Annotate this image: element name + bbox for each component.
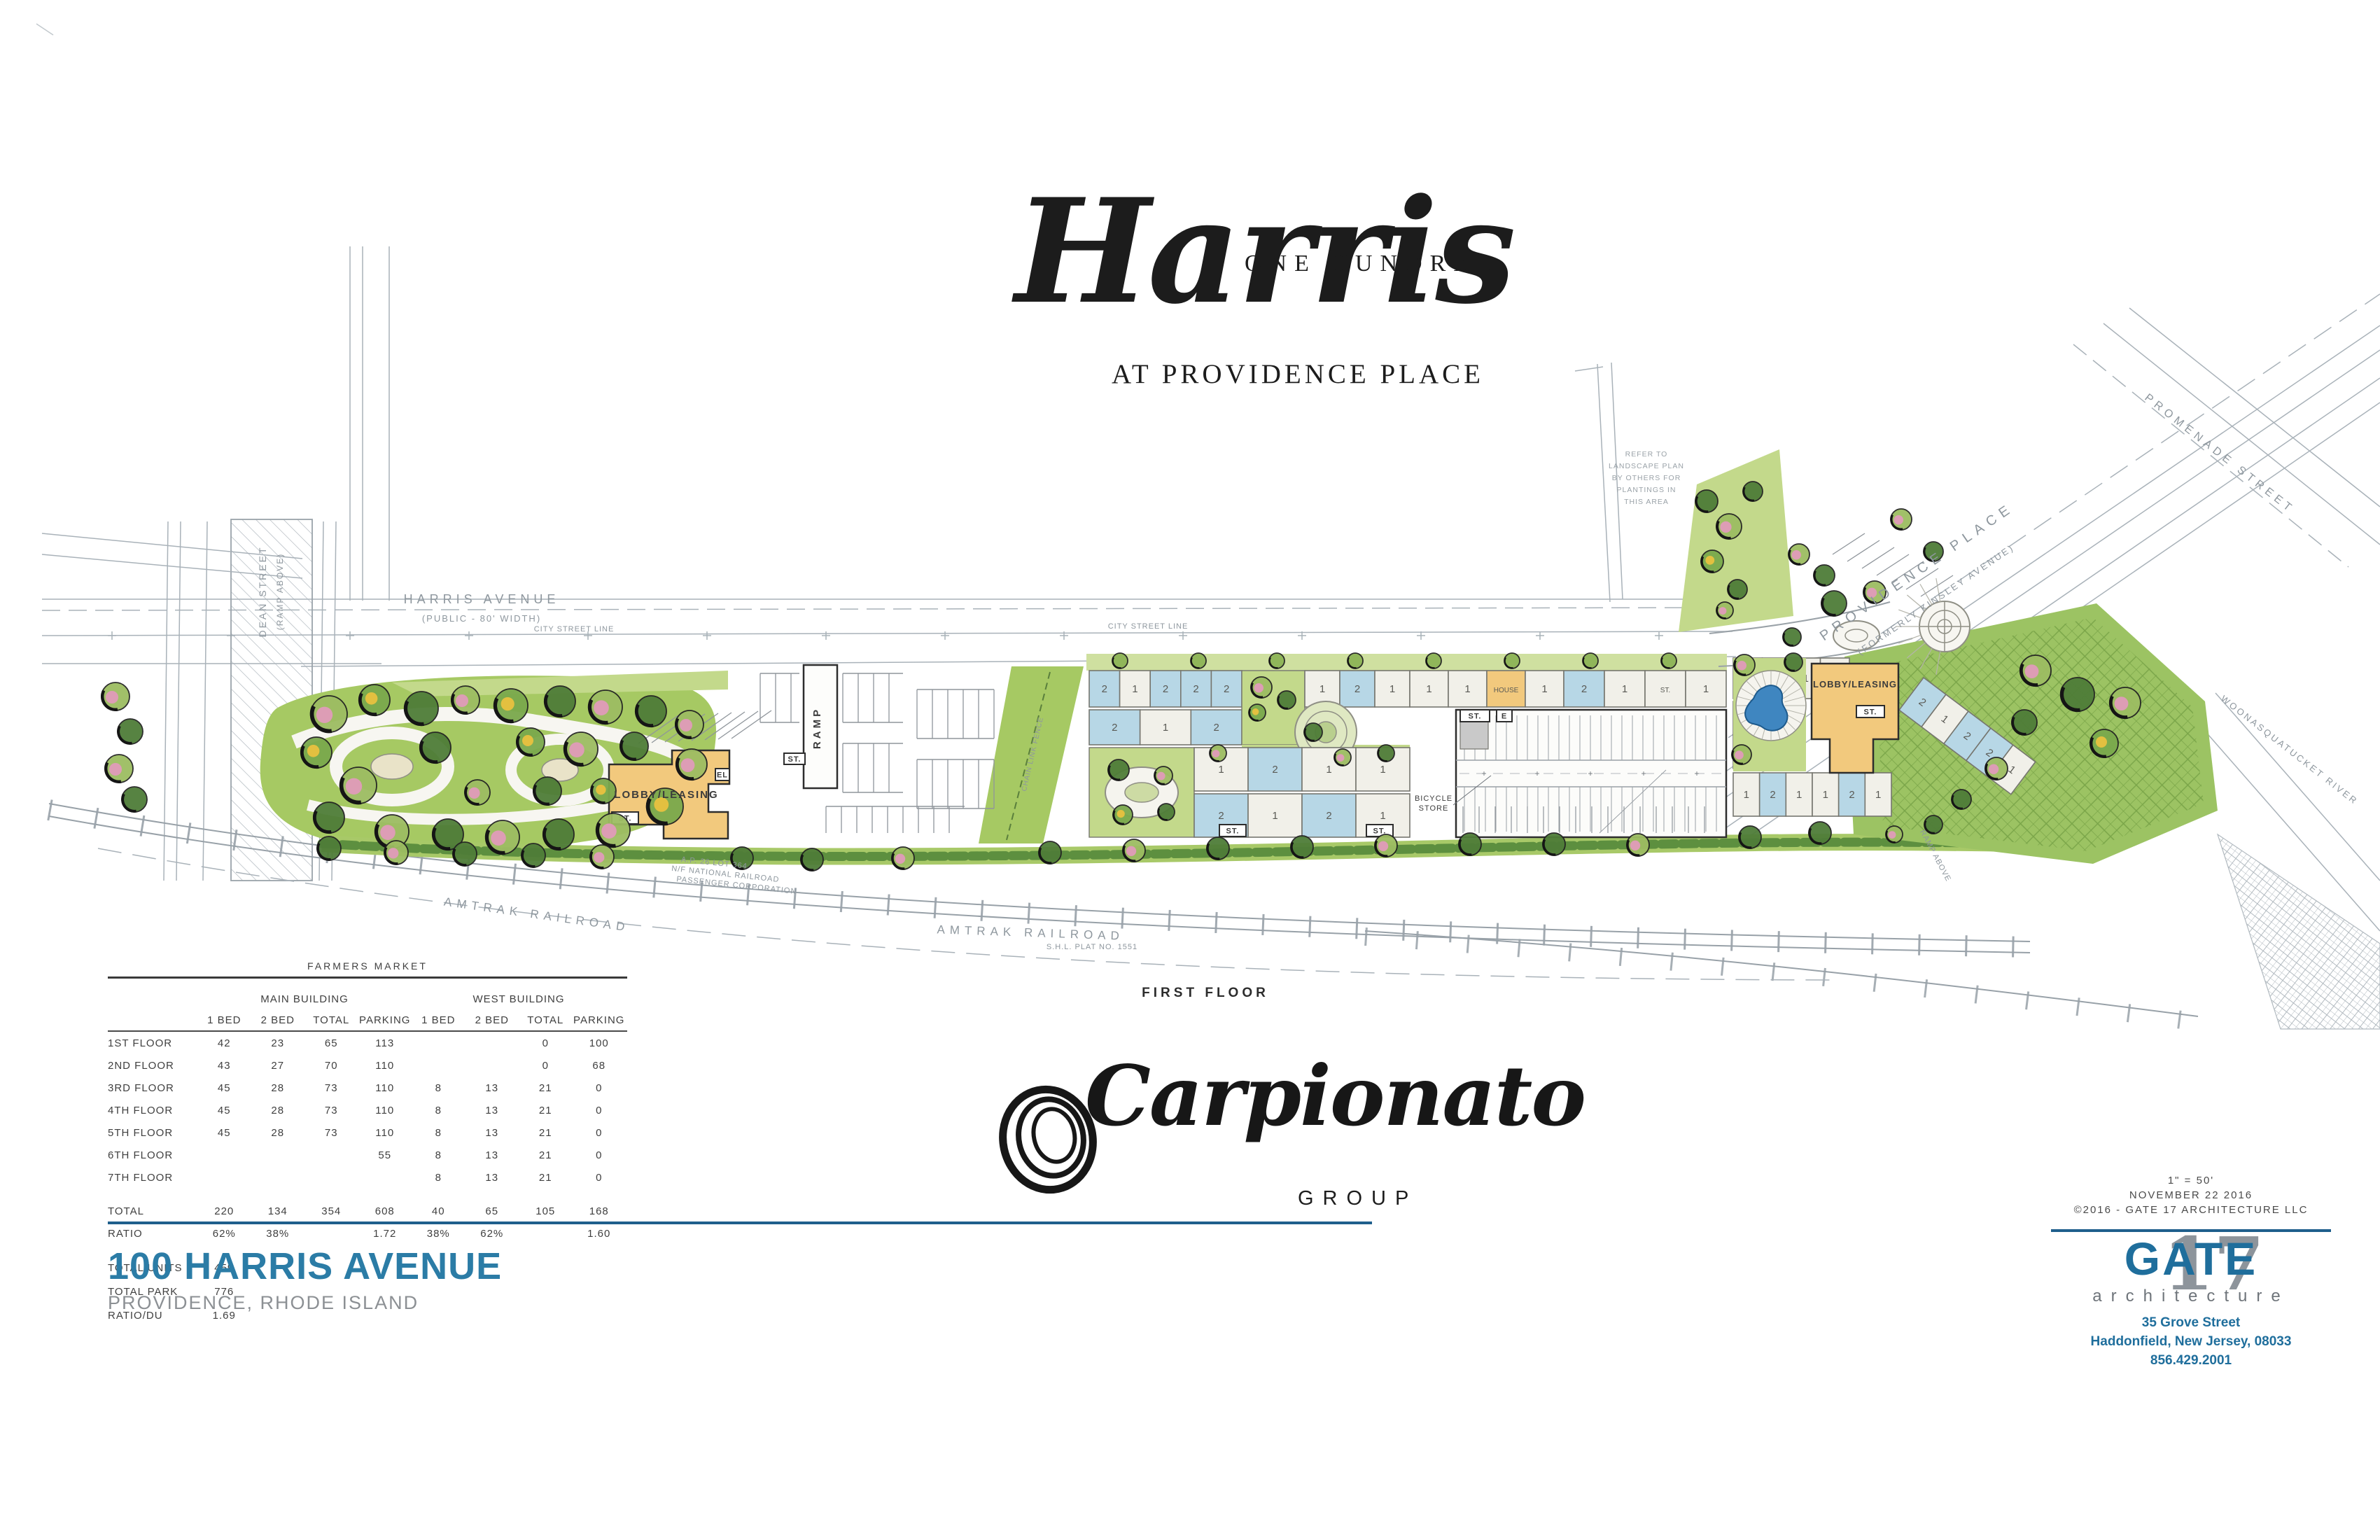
tree-icon: [105, 755, 133, 783]
architect-city: Haddonfield, New Jersey, 08033: [2072, 1332, 2310, 1351]
table-cell: 0: [573, 1082, 626, 1094]
tree-icon: [1249, 704, 1266, 721]
tree-icon: [118, 719, 143, 744]
table-cell: 65: [304, 1037, 358, 1049]
tree-icon: [1661, 653, 1676, 668]
tree-icon: [1891, 509, 1912, 530]
table-row: 3RD FLOOR452873110813210: [108, 1077, 627, 1099]
plan-label-bicycle2: STORE: [1419, 804, 1449, 813]
table-cell: 73: [304, 1105, 358, 1116]
table-cell: 110: [358, 1105, 412, 1116]
unit-cell-label: 1: [1272, 810, 1277, 822]
table-cell: 0: [519, 1037, 573, 1049]
tree-icon: [2012, 710, 2037, 735]
tree-icon: [564, 732, 598, 766]
plan-label-woonasquatucket: WOONASQUATUCKET RIVER: [2219, 693, 2360, 806]
table-cell: 28: [251, 1105, 305, 1116]
project-address: 100 HARRIS AVENUE: [108, 1245, 502, 1288]
table-cell: 168: [573, 1205, 626, 1217]
tree-icon: [545, 686, 575, 717]
plan-label-st: ST.: [788, 755, 801, 764]
plan-label-lobby-leasing: LOBBY/LEASING: [614, 789, 718, 801]
plan-label-dean-street: DEAN STREET: [257, 545, 268, 637]
table-cell: 38%: [412, 1228, 465, 1240]
tree-icon: [1113, 805, 1133, 825]
tree-icon: [1108, 759, 1129, 780]
tree-icon: [405, 692, 438, 725]
tree-icon: [1277, 691, 1296, 709]
tree-icon: [636, 696, 666, 727]
plan-label-first-floor: FIRST FLOOR: [1142, 986, 1269, 1000]
tree-icon: [1304, 723, 1322, 741]
plan-label-city-street-line: CITY STREET LINE: [1108, 622, 1189, 631]
tree-icon: [451, 686, 479, 714]
tree-icon: [359, 685, 390, 715]
unit-cell-label: 1: [1744, 789, 1749, 801]
table-cell: 40: [412, 1205, 465, 1217]
unit-cell-label: 1: [1464, 683, 1470, 695]
tree-icon: [486, 820, 519, 854]
table-cell: RATIO: [108, 1228, 197, 1240]
tree-icon: [1123, 839, 1145, 862]
tree-icon: [620, 732, 648, 760]
table-cell: 28: [251, 1127, 305, 1139]
tree-icon: [384, 841, 408, 864]
tree-icon: [1695, 490, 1718, 512]
unit-row: 212: [1089, 710, 1242, 745]
tree-icon: [453, 842, 477, 866]
unit-cell-label: 1: [1823, 789, 1828, 801]
unit-cell-label: 1: [1389, 683, 1395, 695]
svg-text:+: +: [1694, 769, 1699, 778]
tree-icon: [1627, 834, 1649, 856]
table-cell: 5TH FLOOR: [108, 1127, 197, 1139]
tree-icon: [1809, 822, 1831, 844]
plan-label-el: EL: [717, 771, 728, 780]
developer-logo: Carpionato GROUP: [995, 1084, 1471, 1224]
unit-cell-label: 2: [1193, 683, 1198, 695]
tree-icon: [317, 836, 341, 860]
table-row: 6TH FLOOR55813210: [108, 1144, 627, 1166]
unit-cell-label: 2: [1218, 810, 1224, 822]
landscape-note-line: THIS AREA: [1624, 498, 1669, 506]
table-cell: 62%: [465, 1228, 519, 1240]
drawing-info: 1" = 50' NOVEMBER 22 2016 ©2016 - GATE 1…: [2051, 1173, 2331, 1217]
drawing-copyright: ©2016 - GATE 17 ARCHITECTURE LLC: [2051, 1203, 2331, 1217]
tree-icon: [1112, 653, 1128, 668]
tree-icon: [1784, 653, 1802, 671]
plan-label-city-street-line: CITY STREET LINE: [534, 625, 615, 633]
tree-icon: [543, 819, 574, 850]
table-cell: 110: [358, 1127, 412, 1139]
title-sub: AT PROVIDENCE PLACE: [1112, 358, 1484, 390]
table-cell: 13: [465, 1082, 519, 1094]
table-cell: 38%: [251, 1228, 305, 1240]
svg-text:+: +: [1481, 769, 1486, 778]
plan-label-amtrak-railroad: AMTRAK RAILROAD: [443, 895, 631, 934]
table-cell: 13: [465, 1149, 519, 1161]
table-cell: 0: [573, 1127, 626, 1139]
tree-icon: [1375, 834, 1397, 857]
table-row: 2ND FLOOR432770110068: [108, 1054, 627, 1077]
drawing-date: NOVEMBER 22 2016: [2051, 1188, 2331, 1203]
plan-label-ramp: RAMP: [811, 707, 823, 749]
table-cell: 0: [573, 1149, 626, 1161]
tree-icon: [1716, 514, 1742, 539]
tree-icon: [892, 847, 914, 869]
tree-icon: [1739, 826, 1761, 848]
plan-label-e: E: [1501, 713, 1507, 721]
unit-cell-label: 1: [1380, 810, 1385, 822]
table-cell: 28: [251, 1082, 305, 1094]
table-cell: 2 BED: [465, 1014, 519, 1026]
tree-icon: [1743, 482, 1763, 501]
tree-icon: [591, 778, 616, 804]
table-cell: 0: [573, 1105, 626, 1116]
rule-left: [108, 1221, 1372, 1224]
tree-icon: [675, 710, 703, 738]
unit-row: 21222: [1089, 671, 1242, 707]
table-cell: 1.72: [358, 1228, 412, 1240]
table-cell: 0: [573, 1172, 626, 1184]
landscape-note-line: REFER TO: [1625, 450, 1668, 458]
tree-icon: [1154, 766, 1172, 785]
table-row: MAIN BUILDINGWEST BUILDING: [108, 988, 627, 1009]
unit-cell-label: 1: [1426, 683, 1431, 695]
landscape-note-line: LANDSCAPE PLAN: [1609, 462, 1684, 470]
tree-icon: [122, 787, 147, 812]
project-title: Harris ONE HUNDRED AT PROVIDENCE PLACE: [1015, 210, 1547, 399]
tree-icon: [311, 696, 347, 732]
table-cell: 21: [519, 1149, 573, 1161]
table-cell: 608: [358, 1205, 412, 1217]
tree-icon: [1504, 653, 1520, 668]
tree-icon: [314, 802, 344, 833]
table-cell: TOTAL: [304, 1014, 358, 1026]
table-cell: 1ST FLOOR: [108, 1037, 197, 1049]
unit-cell-label: HOUSE: [1494, 687, 1519, 694]
tree-icon: [301, 737, 332, 768]
table-cell: 45: [197, 1105, 251, 1116]
tree-icon: [533, 777, 561, 805]
developer-group: GROUP: [1298, 1187, 1417, 1210]
gate-word: GATE: [2072, 1232, 2310, 1285]
tree-icon: [494, 689, 528, 722]
unit-cell-label: 2: [1326, 810, 1331, 822]
table-cell: 8: [412, 1127, 465, 1139]
unit-cell-label: 1: [1703, 683, 1709, 695]
plan-label-harris-avenue-sub: (PUBLIC - 80' WIDTH): [422, 613, 541, 624]
table-cell: TOTAL: [519, 1014, 573, 1026]
tree-icon: [1251, 677, 1272, 698]
unit-cell-label: 1: [1380, 764, 1385, 776]
table-cell: 55: [358, 1149, 412, 1161]
table-cell: 8: [412, 1149, 465, 1161]
table-row: 7TH FLOOR813210: [108, 1166, 627, 1189]
table-cell: 7TH FLOOR: [108, 1172, 197, 1184]
table-cell: 13: [465, 1105, 519, 1116]
plan-sheet: 2122221212111HOUSE121ST.112112121+++++12…: [0, 0, 2380, 1540]
developer-name: Carpionato: [1085, 1047, 1585, 1144]
table-cell: 21: [519, 1172, 573, 1184]
tree-icon: [1886, 826, 1903, 843]
plan-label-harris-avenue: HARRIS AVENUE: [404, 592, 560, 606]
plan-label-st: ST.: [1864, 708, 1877, 717]
tree-icon: [517, 728, 545, 756]
tree-icon: [1039, 841, 1061, 864]
table-cell: 220: [197, 1205, 251, 1217]
table-cell: 68: [573, 1060, 626, 1072]
tree-icon: [1732, 745, 1751, 764]
gate-architecture: architecture: [2072, 1287, 2310, 1306]
tree-icon: [1788, 544, 1809, 565]
table-cell: 45: [197, 1127, 251, 1139]
unit-cell-label: 1: [1875, 789, 1881, 801]
unit-cell-label: 1: [1796, 789, 1802, 801]
plan-label-promenade-street: PROMENADE STREET: [2142, 392, 2297, 517]
landscape-note-line: BY OTHERS FOR: [1612, 474, 1681, 482]
tree-icon: [1583, 653, 1598, 668]
architect-logo: 17 GATE architecture 35 Grove Street Had…: [2072, 1232, 2310, 1370]
tree-icon: [590, 845, 614, 869]
table-cell: 73: [304, 1082, 358, 1094]
tree-icon: [1701, 550, 1723, 573]
table-cell: 21: [519, 1105, 573, 1116]
table-cell: 73: [304, 1127, 358, 1139]
plan-label-lobby-leasing: LOBBY/LEASING: [1813, 679, 1897, 689]
tree-icon: [420, 732, 451, 763]
table-cell: 0: [519, 1060, 573, 1072]
tree-icon: [1210, 745, 1226, 762]
table-cell: TOTAL: [108, 1205, 197, 1217]
table-cell: 21: [519, 1082, 573, 1094]
tree-icon: [676, 749, 707, 780]
unit-row: 11HOUSE1: [1410, 671, 1564, 707]
plan-label-bicycle1: BICYCLE: [1415, 794, 1452, 803]
plan-label-dean-street-sub: (RAMP ABOVE): [275, 553, 285, 630]
table-cell: 1 BED: [412, 1014, 465, 1026]
plan-label-amtrak-railroad: AMTRAK RAILROAD: [937, 923, 1124, 942]
tree-icon: [465, 780, 490, 805]
table-row: 5TH FLOOR452873110813210: [108, 1121, 627, 1144]
table-cell: 110: [358, 1060, 412, 1072]
unit-cell-label: 1: [1218, 764, 1224, 776]
tree-icon: [1952, 790, 1971, 809]
tree-icon: [1291, 836, 1313, 858]
table-cell: 4TH FLOOR: [108, 1105, 197, 1116]
tree-icon: [1734, 654, 1755, 675]
unit-cell-label: 1: [1132, 683, 1137, 695]
title-pre: ONE HUNDRED: [1245, 251, 1501, 277]
tree-icon: [1814, 565, 1835, 586]
tree-icon: [1985, 757, 2008, 780]
table-cell: PARKING: [573, 1014, 626, 1026]
table-cell: 23: [251, 1037, 305, 1049]
tree-icon: [2110, 687, 2141, 718]
svg-text:+: +: [1588, 769, 1592, 778]
unit-cell-label: 2: [1272, 764, 1277, 776]
tree-icon: [1207, 837, 1229, 860]
project-block: 100 HARRIS AVENUE PROVIDENCE, RHODE ISLA…: [108, 1245, 502, 1314]
tree-icon: [2090, 729, 2118, 757]
plan-label-st: ST.: [1226, 827, 1240, 836]
tree-icon: [1728, 580, 1747, 599]
table-cell: 110: [358, 1082, 412, 1094]
table-cell: 100: [573, 1037, 626, 1049]
unit-cell-label: 2: [1102, 683, 1107, 695]
tree-icon: [1543, 833, 1565, 855]
table-cell: 42: [197, 1037, 251, 1049]
table-cell: 62%: [197, 1228, 251, 1240]
tree-icon: [2020, 655, 2051, 686]
tree-icon: [589, 690, 622, 724]
table-cell: 43: [197, 1060, 251, 1072]
table-cell: 354: [304, 1205, 358, 1217]
architect-phone: 856.429.2001: [2072, 1351, 2310, 1370]
plan-label-st: ST.: [1469, 713, 1482, 721]
tree-icon: [1378, 745, 1394, 762]
unit-cell-label: 2: [1581, 683, 1587, 695]
table-cell: 45: [197, 1082, 251, 1094]
table-cell: PARKING: [358, 1014, 412, 1026]
table-cell: 8: [412, 1172, 465, 1184]
table-cell: 13: [465, 1172, 519, 1184]
table-row: TOTAL2201343546084065105168: [108, 1200, 627, 1222]
tree-icon: [596, 813, 630, 847]
table-title: FARMERS MARKET: [108, 960, 627, 979]
plan-label-providence-place: PROVIDENCE PLACE: [1817, 500, 2017, 644]
tree-icon: [1821, 591, 1847, 616]
unit-cell-label: 1: [1622, 683, 1627, 695]
unit-cell-label: 1: [1541, 683, 1547, 695]
architect-street: 35 Grove Street: [2072, 1313, 2310, 1332]
tree-icon: [1459, 833, 1481, 855]
table-cell: 1 BED: [197, 1014, 251, 1026]
table-cell: 21: [519, 1127, 573, 1139]
unit-cell-label: 1: [1326, 764, 1331, 776]
unit-cell-label: 2: [1213, 722, 1219, 734]
landscape-note-line: PLANTINGS IN: [1617, 486, 1676, 494]
unit-cell-label: 1: [1163, 722, 1168, 734]
table-cell: 27: [251, 1060, 305, 1072]
table-cell: 2 BED: [251, 1014, 305, 1026]
table-cell: 65: [465, 1205, 519, 1217]
tree-icon: [1191, 653, 1206, 668]
table-row: [108, 1189, 627, 1200]
tree-icon: [1716, 602, 1733, 619]
tree-icon: [521, 843, 545, 867]
table-row: RATIO62%38%1.7238%62%1.60: [108, 1222, 627, 1245]
table-cell: 113: [358, 1037, 412, 1049]
table-row: 4TH FLOOR452873110813210: [108, 1099, 627, 1121]
table-row: 1 BED2 BEDTOTALPARKING1 BED2 BEDTOTALPAR…: [108, 1009, 627, 1032]
project-city: PROVIDENCE, RHODE ISLAND: [108, 1292, 502, 1314]
unit-cell-label: ST.: [1660, 687, 1670, 694]
tree-icon: [2061, 678, 2094, 711]
table-cell: 2ND FLOOR: [108, 1060, 197, 1072]
unit-cell-label: 2: [1224, 683, 1229, 695]
table-cell: 8: [412, 1082, 465, 1094]
table-row: 1ST FLOOR4223651130100: [108, 1032, 627, 1054]
table-cell: 13: [465, 1127, 519, 1139]
table-cell: WEST BUILDING: [412, 993, 626, 1005]
tree-icon: [1269, 653, 1284, 668]
tree-icon: [1783, 628, 1801, 646]
tree-icon: [101, 682, 129, 710]
drawing-scale: 1" = 50': [2051, 1173, 2331, 1188]
table-cell: 6TH FLOOR: [108, 1149, 197, 1161]
unit-cell-label: 2: [1770, 789, 1775, 801]
unit-cell-label: 2: [1112, 722, 1117, 734]
tree-icon: [1426, 653, 1441, 668]
plan-label-shl-plat: S.H.L. PLAT NO. 1551: [1046, 943, 1137, 951]
unit-cell-label: 2: [1849, 789, 1854, 801]
tree-icon: [801, 848, 823, 871]
table-cell: 70: [304, 1060, 358, 1072]
table-cell: MAIN BUILDING: [197, 993, 412, 1005]
table-cell: 134: [251, 1205, 305, 1217]
table-cell: 1.60: [573, 1228, 626, 1240]
svg-text:+: +: [1534, 769, 1539, 778]
tree-icon: [1158, 804, 1175, 820]
tree-icon: [1347, 653, 1363, 668]
table-cell: 8: [412, 1105, 465, 1116]
unit-cell-label: 2: [1163, 683, 1168, 695]
unit-cell-label: 1: [1319, 683, 1325, 695]
tree-icon: [1334, 749, 1351, 766]
unit-row: 121121: [1733, 773, 1891, 816]
unit-cell-label: 2: [1354, 683, 1360, 695]
svg-text:+: +: [1641, 769, 1646, 778]
tree-icon: [340, 767, 377, 804]
table-cell: 105: [519, 1205, 573, 1217]
table-cell: 3RD FLOOR: [108, 1082, 197, 1094]
unit-row: 21ST.1: [1564, 671, 1726, 707]
parking-garage: +++++: [1456, 710, 1726, 837]
